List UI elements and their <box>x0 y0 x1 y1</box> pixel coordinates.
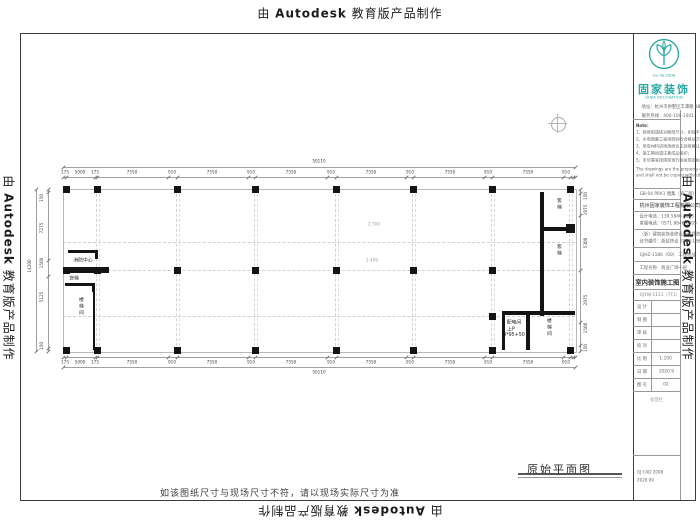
tb-divider <box>633 229 680 230</box>
dimension-label: 7550 <box>207 170 218 175</box>
dimension-tick <box>573 165 577 169</box>
column <box>174 186 181 193</box>
room-label: 客梯 <box>555 198 562 211</box>
compass-icon <box>551 117 566 132</box>
column <box>489 313 496 320</box>
wall <box>95 250 98 259</box>
compass-icon <box>548 123 567 124</box>
tb-divider <box>633 261 680 262</box>
tb-divider <box>633 289 680 290</box>
wall <box>566 224 575 233</box>
tb-divider <box>633 247 680 248</box>
address-line: 地址：杭州市拱墅区丰潭路 88 号 <box>642 103 687 109</box>
room-label: 消防中心 <box>73 256 92 263</box>
drawing-title-rule-2 <box>518 477 622 478</box>
table-row-label: 日 期 <box>637 368 647 374</box>
dimension-label: 1500 <box>40 258 45 269</box>
table-row-label: 设 计 <box>637 303 647 309</box>
dimension-label: 5125 <box>40 292 45 303</box>
titleblock-table-row: 制 图 <box>633 313 680 326</box>
column <box>94 186 101 193</box>
wall <box>540 192 544 316</box>
tb-divider <box>633 188 680 189</box>
dimension-line <box>36 189 37 351</box>
column <box>63 347 70 354</box>
cert-line: （浙）建筑装饰装修设计专项资质 <box>640 232 674 237</box>
dimension-label: 910 <box>484 360 492 365</box>
table-row-value: 02 <box>663 382 669 387</box>
grid-line-horizontal <box>63 316 575 317</box>
table-row-label: 制 图 <box>637 316 647 322</box>
spec-line: GB-04 PRA1 图集（第二版） <box>640 190 674 196</box>
titleblock-table-row: 校 对 <box>633 339 680 352</box>
footer-line: GJ·CAD 2008 <box>637 470 668 475</box>
dimension-label: 50110 <box>312 159 325 164</box>
dimension-label: 910 <box>406 360 414 365</box>
dimension-label: 1975 <box>584 205 589 216</box>
dimension-label: 910 <box>168 360 176 365</box>
wall <box>65 283 95 286</box>
wall <box>93 286 95 350</box>
dimension-label: 7550 <box>523 360 534 365</box>
column <box>489 186 496 193</box>
column <box>174 267 181 274</box>
brand-logo-icon <box>647 37 681 71</box>
legal-line: and shall not be copied without permissi… <box>636 174 677 178</box>
footer-line: 2020.09 <box>637 478 668 483</box>
note-line: 2、水电隐蔽工程须经验收合格后方可封闭； <box>636 137 677 142</box>
dimension-label: 7550 <box>127 360 138 365</box>
tb-divider <box>633 211 680 212</box>
dimension-label: 175 <box>91 360 99 365</box>
dimension-label: 910 <box>247 360 255 365</box>
dimension-label: 910 <box>327 360 335 365</box>
dimension-line <box>63 167 575 168</box>
note-line: 5、未尽事宜按国家现行相关规范执行。 <box>636 158 677 163</box>
phone-line: 客服电话：0571 8846 6805 <box>640 221 674 226</box>
dimension-label: 2975 <box>584 295 589 306</box>
room-label: 楼梯间 <box>545 318 552 337</box>
footer-note: 如该图纸尺寸与现场尺寸不符，请以现场实际尺寸为准 <box>160 486 400 499</box>
floor-plan: 5011017550001757550910755091075509107550… <box>0 0 700 525</box>
dimension-label: 150 <box>584 344 589 352</box>
column <box>333 347 340 354</box>
room-label: 楼梯间 <box>77 297 84 316</box>
phone-line: 设计电话：139 5846 6805 <box>640 214 674 219</box>
dimension-label: 5000 <box>75 360 86 365</box>
cad-sheet: 由 Autodesk 教育版产品制作 由 Autodesk 教育版产品制作 由 … <box>0 0 700 525</box>
titleblock-certs: （浙）建筑装饰装修设计专项资质证书编号：浙装饰设 2008-186 号 <box>633 232 680 246</box>
dimension-label: 7550 <box>207 360 218 365</box>
dimension-line <box>63 367 575 368</box>
column <box>252 347 259 354</box>
dimension-label: 175 <box>61 170 69 175</box>
dimension-label: 14200 <box>28 259 33 272</box>
address-line: 服务热线：400-100-1001 <box>642 112 687 118</box>
dimension-tick <box>578 349 582 353</box>
project-no: GJHZ-1186（00） 工程地址 <box>640 251 674 257</box>
tb-divider <box>633 274 680 275</box>
dimension-label: 910 <box>247 170 255 175</box>
doc-code: GJYW-1111（7F1） <box>640 291 674 297</box>
titleblock-phones: 设计电话：139 5846 6805客服电话：0571 8846 6805 <box>633 214 680 228</box>
cert-line: 证书编号：浙装饰设 2008-186 号 <box>640 239 674 244</box>
plan-outline <box>63 189 577 353</box>
column <box>252 186 259 193</box>
dimension-label: 175 <box>61 360 69 365</box>
note-line: 1、装修前请核对图纸尺寸，如有不符请及时联系设计师； <box>636 130 677 135</box>
titleblock-table-row: 比 例1:100 <box>633 352 680 365</box>
column <box>410 267 417 274</box>
column <box>489 347 496 354</box>
wall <box>526 315 530 350</box>
dimension-label: 910 <box>484 170 492 175</box>
dimension-label: 910 <box>562 360 570 365</box>
height-annotation: 2.400 <box>366 258 378 263</box>
titleblock-logo <box>633 37 695 75</box>
dimension-label: 1500 <box>584 323 589 334</box>
dimension-label: 7550 <box>286 360 297 365</box>
dimension-label: 5000 <box>75 170 86 175</box>
room-label: 货梯 <box>69 274 79 281</box>
dimension-label: 175 <box>91 170 99 175</box>
dimension-label: 7550 <box>127 170 138 175</box>
titleblock-table-row: 图 号02 <box>633 378 680 391</box>
titleblock-table-row: 设 计 <box>633 300 680 313</box>
dimension-label: 910 <box>327 170 335 175</box>
dimension-label: 7550 <box>366 360 377 365</box>
brand-badge-year: Gu Jia 2008 <box>644 73 684 78</box>
table-row-label: 比 例 <box>637 355 647 361</box>
notes-title: Note： <box>636 122 651 128</box>
column <box>489 267 496 274</box>
dimension-label: 150 <box>584 192 589 200</box>
dimension-label: 7550 <box>286 170 297 175</box>
column <box>333 267 340 274</box>
titleblock-notes: 1、装修前请核对图纸尺寸，如有不符请及时联系设计师；2、水电隐蔽工程须经验收合格… <box>636 130 696 165</box>
drawing-title-rule-1 <box>518 473 622 475</box>
column <box>410 186 417 193</box>
titleblock-legal: The drawings are the property of GUJIA D… <box>636 168 696 180</box>
height-annotation: 2.700 <box>368 222 380 227</box>
column <box>252 267 259 274</box>
column <box>94 347 101 354</box>
wall <box>502 311 575 315</box>
dimension-tick <box>573 365 577 369</box>
note-line: 4、施工期间请注意成品保护； <box>636 151 677 156</box>
dimension-label: 50110 <box>312 370 325 375</box>
dimension-label: 910 <box>406 170 414 175</box>
column <box>410 347 417 354</box>
titleblock-table: 设 计制 图审 核校 对比 例1:100日 期2020.9图 号02 <box>633 300 680 392</box>
dimension-label: 150 <box>40 342 45 350</box>
dimension-line <box>63 357 575 358</box>
dimension-label: 7550 <box>445 360 456 365</box>
titleblock-table-row: 日 期2020.9 <box>633 365 680 378</box>
room-label: 4*95+50 <box>503 332 525 338</box>
dimension-line <box>48 189 49 351</box>
dimension-label: 7550 <box>445 170 456 175</box>
dimension-label: 5300 <box>584 238 589 249</box>
grid-line-horizontal <box>63 242 575 243</box>
titleblock-footer: GJ·CAD 20082020.09 <box>637 470 682 486</box>
dimension-label: 7275 <box>40 223 45 234</box>
table-row-label: 图 号 <box>637 381 647 387</box>
doc-type: 室内装饰施工图 <box>635 278 677 287</box>
brand-name-en: GUJIA DECORATION <box>644 95 684 100</box>
note-line: 3、所有材料进场须经业主验收确认后方可施工； <box>636 144 677 149</box>
tb-divider <box>633 455 680 456</box>
company-name: 杭州固家装饰工程有限公司 <box>640 202 674 209</box>
visa-label: 会签栏 <box>640 396 674 402</box>
tb-divider <box>633 119 680 120</box>
column <box>63 186 70 193</box>
dimension-label: 910 <box>168 170 176 175</box>
column <box>94 267 101 274</box>
table-row-value: 1:100 <box>660 356 672 361</box>
grid-line-horizontal <box>63 270 575 271</box>
dimension-tick <box>34 349 38 353</box>
legal-line: The drawings are the property of GUJIA D… <box>636 168 677 172</box>
room-label: 客梯 <box>555 244 562 257</box>
table-row-label: 审 核 <box>637 329 647 335</box>
table-row-label: 校 对 <box>637 342 647 348</box>
column <box>174 347 181 354</box>
dimension-label: 910 <box>562 170 570 175</box>
project-name: 工程名称：商业广场一层 <box>640 264 674 270</box>
column <box>567 347 574 354</box>
column <box>567 186 574 193</box>
column <box>333 186 340 193</box>
dimension-label: 7550 <box>366 170 377 175</box>
tb-divider <box>633 199 680 200</box>
wall <box>68 250 98 253</box>
titleblock-table-row: 审 核 <box>633 326 680 339</box>
dimension-label: 150 <box>40 194 45 202</box>
dimension-line <box>63 177 575 178</box>
table-row-value: 2020.9 <box>658 369 673 374</box>
column <box>63 267 70 274</box>
dimension-label: 7550 <box>523 170 534 175</box>
